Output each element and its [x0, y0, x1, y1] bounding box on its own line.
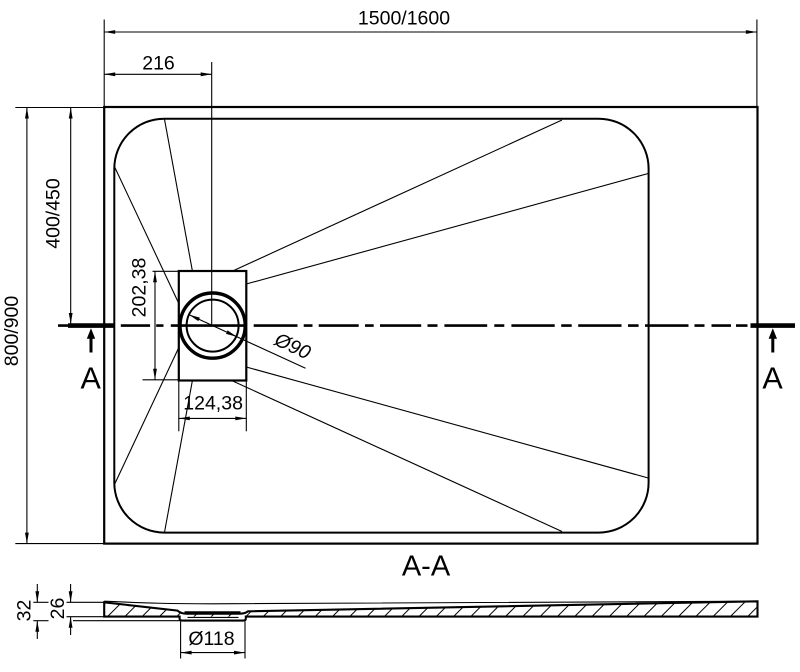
- svg-text:216: 216: [142, 53, 175, 75]
- svg-text:A: A: [81, 362, 102, 396]
- svg-text:32: 32: [13, 600, 35, 622]
- svg-text:202,38: 202,38: [128, 258, 150, 318]
- svg-text:400/450: 400/450: [43, 178, 65, 249]
- svg-text:26: 26: [47, 598, 69, 620]
- svg-text:800/900: 800/900: [1, 296, 23, 367]
- svg-text:124,38: 124,38: [183, 393, 243, 415]
- svg-text:Ø118: Ø118: [188, 628, 234, 650]
- svg-text:A: A: [762, 362, 783, 396]
- svg-text:1500/1600: 1500/1600: [358, 8, 450, 30]
- svg-text:A-A: A-A: [402, 551, 451, 583]
